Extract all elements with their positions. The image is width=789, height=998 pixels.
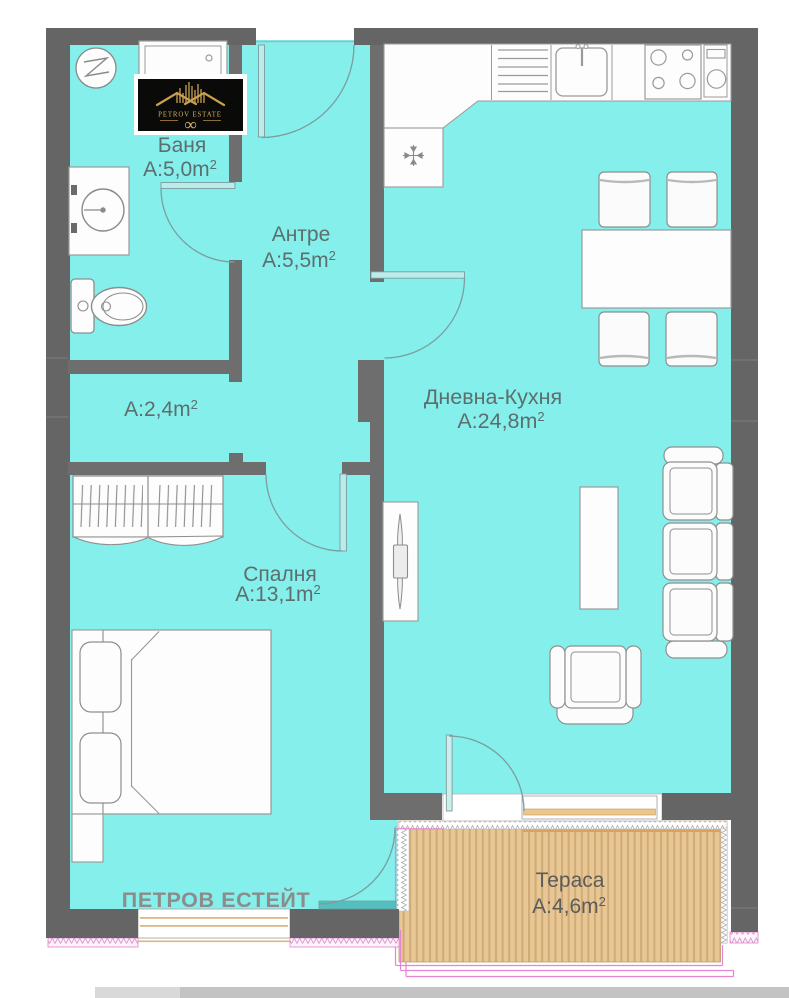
svg-text:A:24,8m2: A:24,8m2	[457, 409, 544, 433]
svg-text:Баня: Баня	[158, 134, 206, 157]
svg-text:A:5,5m2: A:5,5m2	[262, 248, 336, 272]
svg-text:A:4,6m2: A:4,6m2	[532, 894, 606, 918]
svg-text:A:13,1m2: A:13,1m2	[235, 582, 320, 606]
svg-text:ПЕТРОВ ЕСТЕЙТ: ПЕТРОВ ЕСТЕЙТ	[122, 887, 310, 912]
svg-text:Тераса: Тераса	[536, 869, 605, 892]
svg-text:Дневна-Кухня: Дневна-Кухня	[424, 385, 562, 409]
svg-text:A:5,0m2: A:5,0m2	[143, 157, 217, 181]
svg-text:Антре: Антре	[272, 223, 331, 246]
svg-text:∞: ∞	[184, 115, 196, 134]
svg-text:A:2,4m2: A:2,4m2	[124, 397, 198, 421]
